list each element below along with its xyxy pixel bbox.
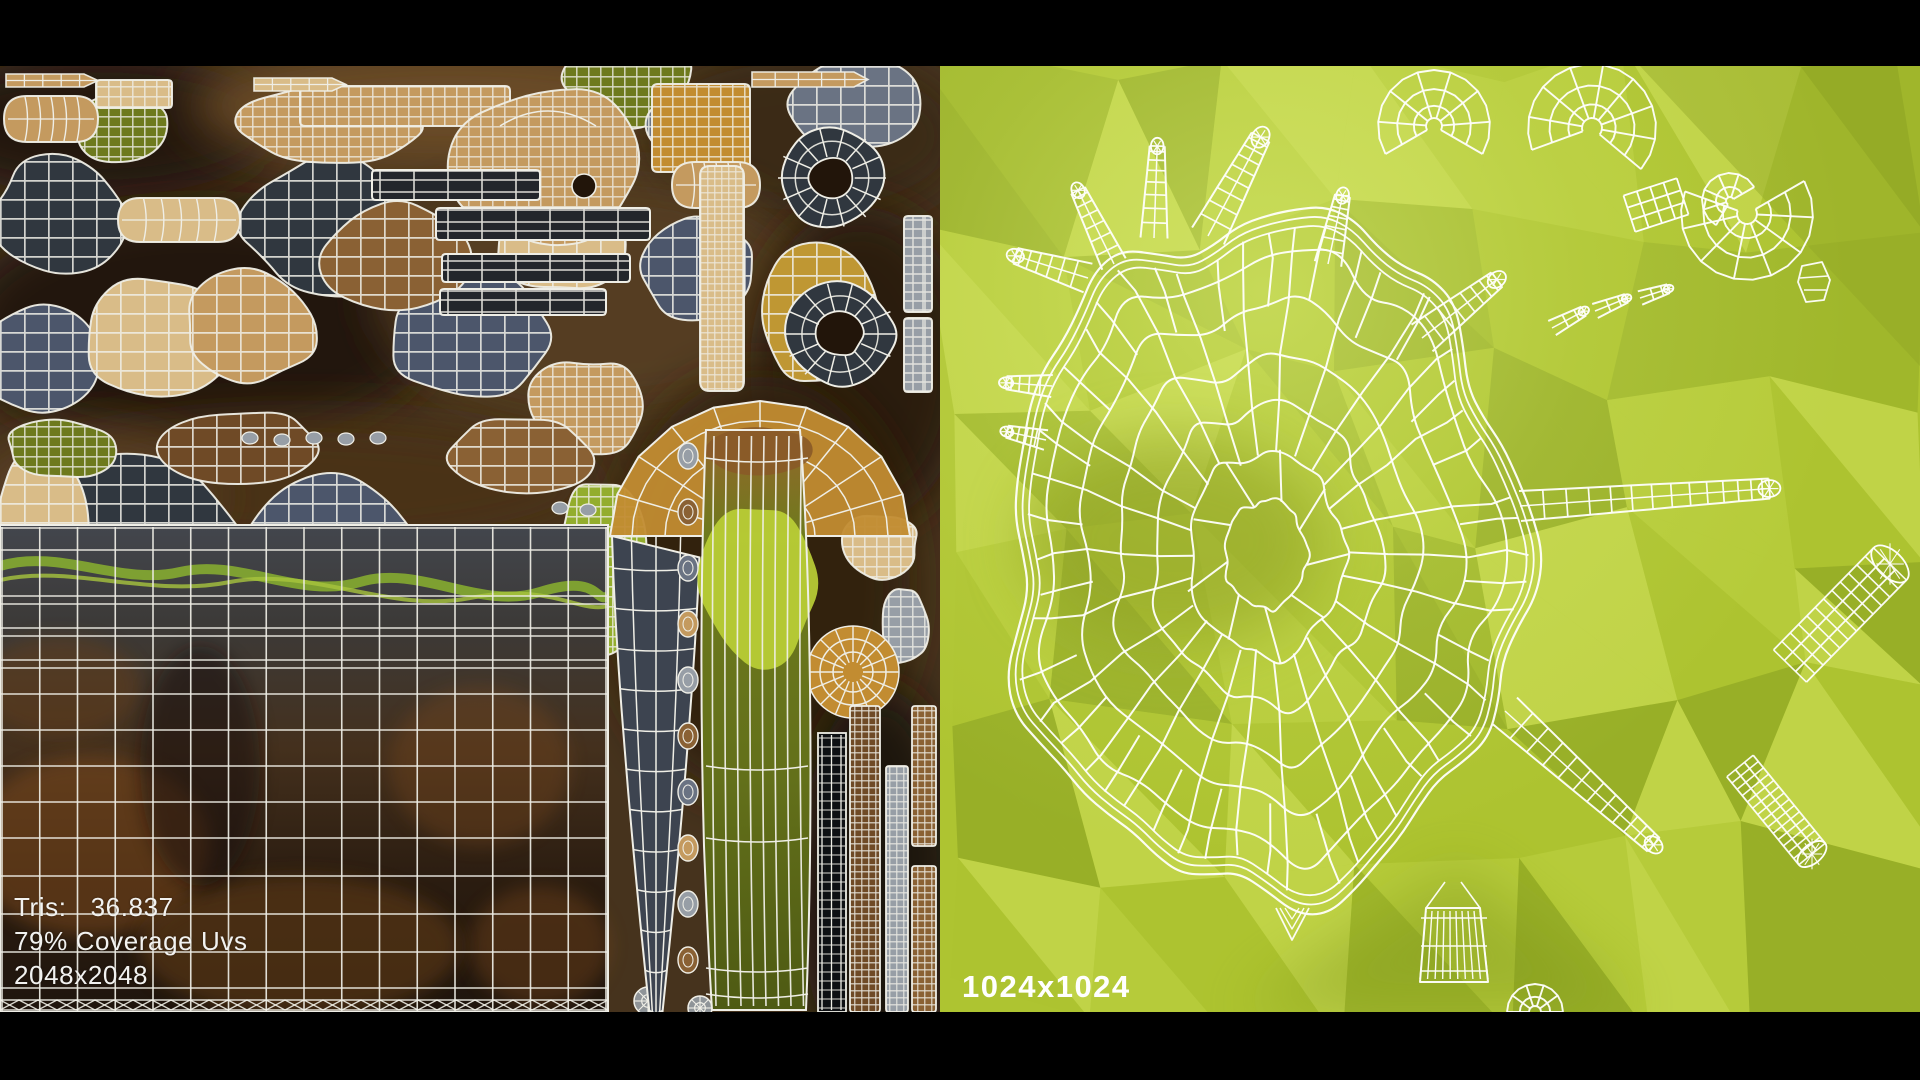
render-canvas: Tris:36.837 79% Coverage Uvs 2048x2048 1… (0, 0, 1920, 1080)
uv-atlas-panel: Tris:36.837 79% Coverage Uvs 2048x2048 (0, 66, 940, 1012)
right-texture-resolution: 1024x1024 (962, 969, 1131, 1005)
uv-stats-overlay: Tris:36.837 79% Coverage Uvs 2048x2048 (14, 890, 248, 992)
trunk-island (697, 427, 818, 1010)
wireframe-preview-panel: 1024x1024 (940, 66, 1920, 1012)
tris-value: 36.837 (91, 892, 174, 922)
letterbox-top (0, 0, 1920, 66)
uv-atlas-art (0, 66, 940, 1012)
uv-coverage: 79% Coverage Uvs (14, 924, 248, 958)
tris-label: Tris: (14, 892, 67, 922)
letterbox-bottom (0, 1012, 1920, 1080)
left-texture-resolution: 2048x2048 (14, 958, 248, 992)
wireframe-preview-art (940, 66, 1920, 1012)
tris-count-row: Tris:36.837 (14, 890, 248, 924)
